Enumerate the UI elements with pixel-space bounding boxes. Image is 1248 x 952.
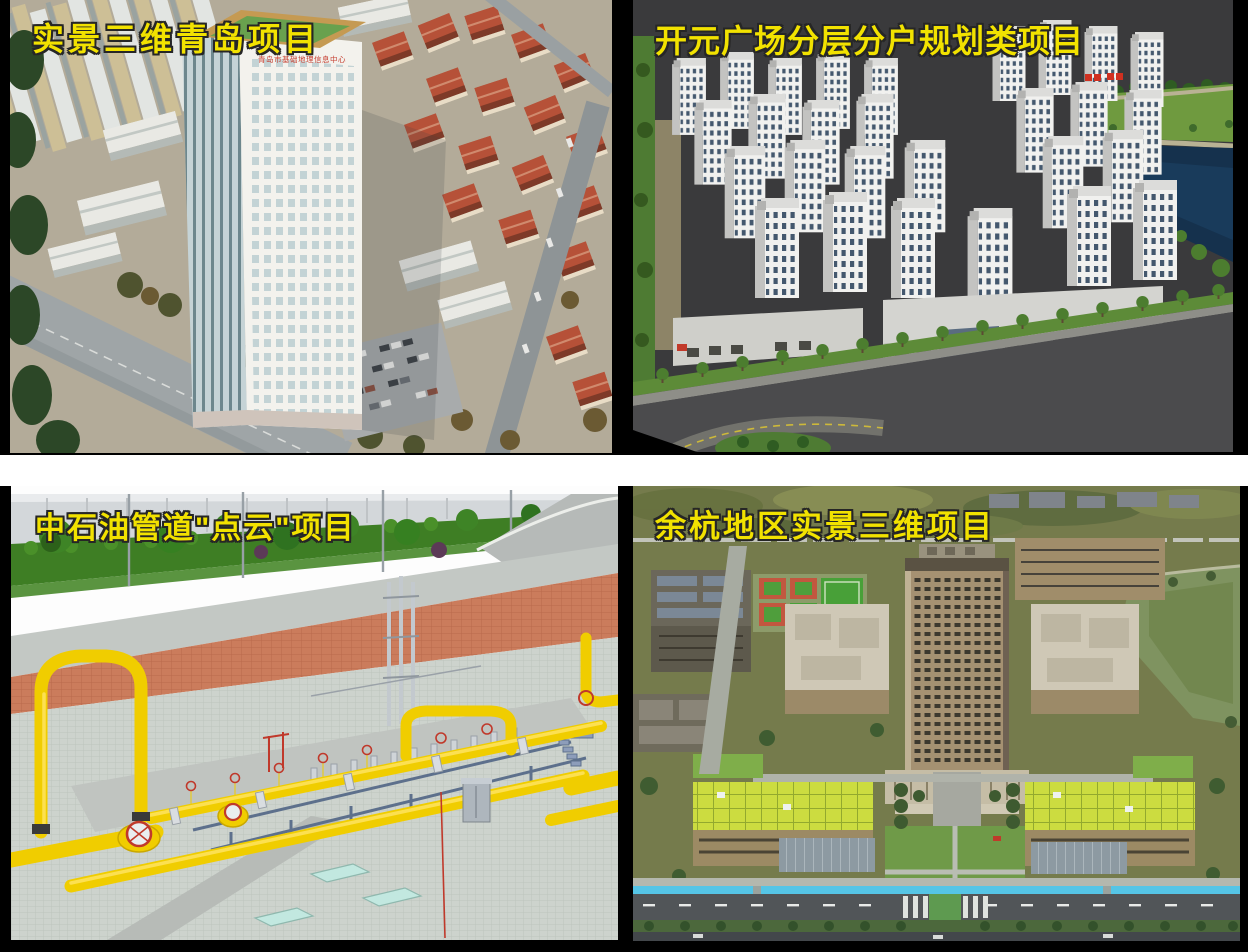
project-card-qingdao: 青岛市基础地理信息中心 实景三维青岛项目 [10,0,612,453]
project-card-pipeline: 中石油管道"点云"项目 [11,486,618,940]
kaiyuan-plaza-model-image [633,0,1233,452]
qingdao-aerial-image: 青岛市基础地理信息中心 [10,0,612,453]
pipeline-model-image [11,486,618,940]
yuhang-aerial-image [633,486,1240,941]
project-card-yuhang: 余杭地区实景三维项目 [633,486,1240,941]
slide-collage: 青岛市基础地理信息中心 实景三维青岛项目 [0,0,1248,952]
row-divider [0,455,1248,486]
project-title-pipeline: 中石油管道"点云"项目 [35,503,355,547]
project-title-kaiyuan-plaza: 开元广场分层分户规划类项目 [655,16,1084,62]
project-title-yuhang: 余杭地区实景三维项目 [655,501,995,546]
project-title-qingdao: 实景三维青岛项目 [32,14,320,60]
project-card-kaiyuan-plaza: 开元广场分层分户规划类项目 [633,0,1233,452]
